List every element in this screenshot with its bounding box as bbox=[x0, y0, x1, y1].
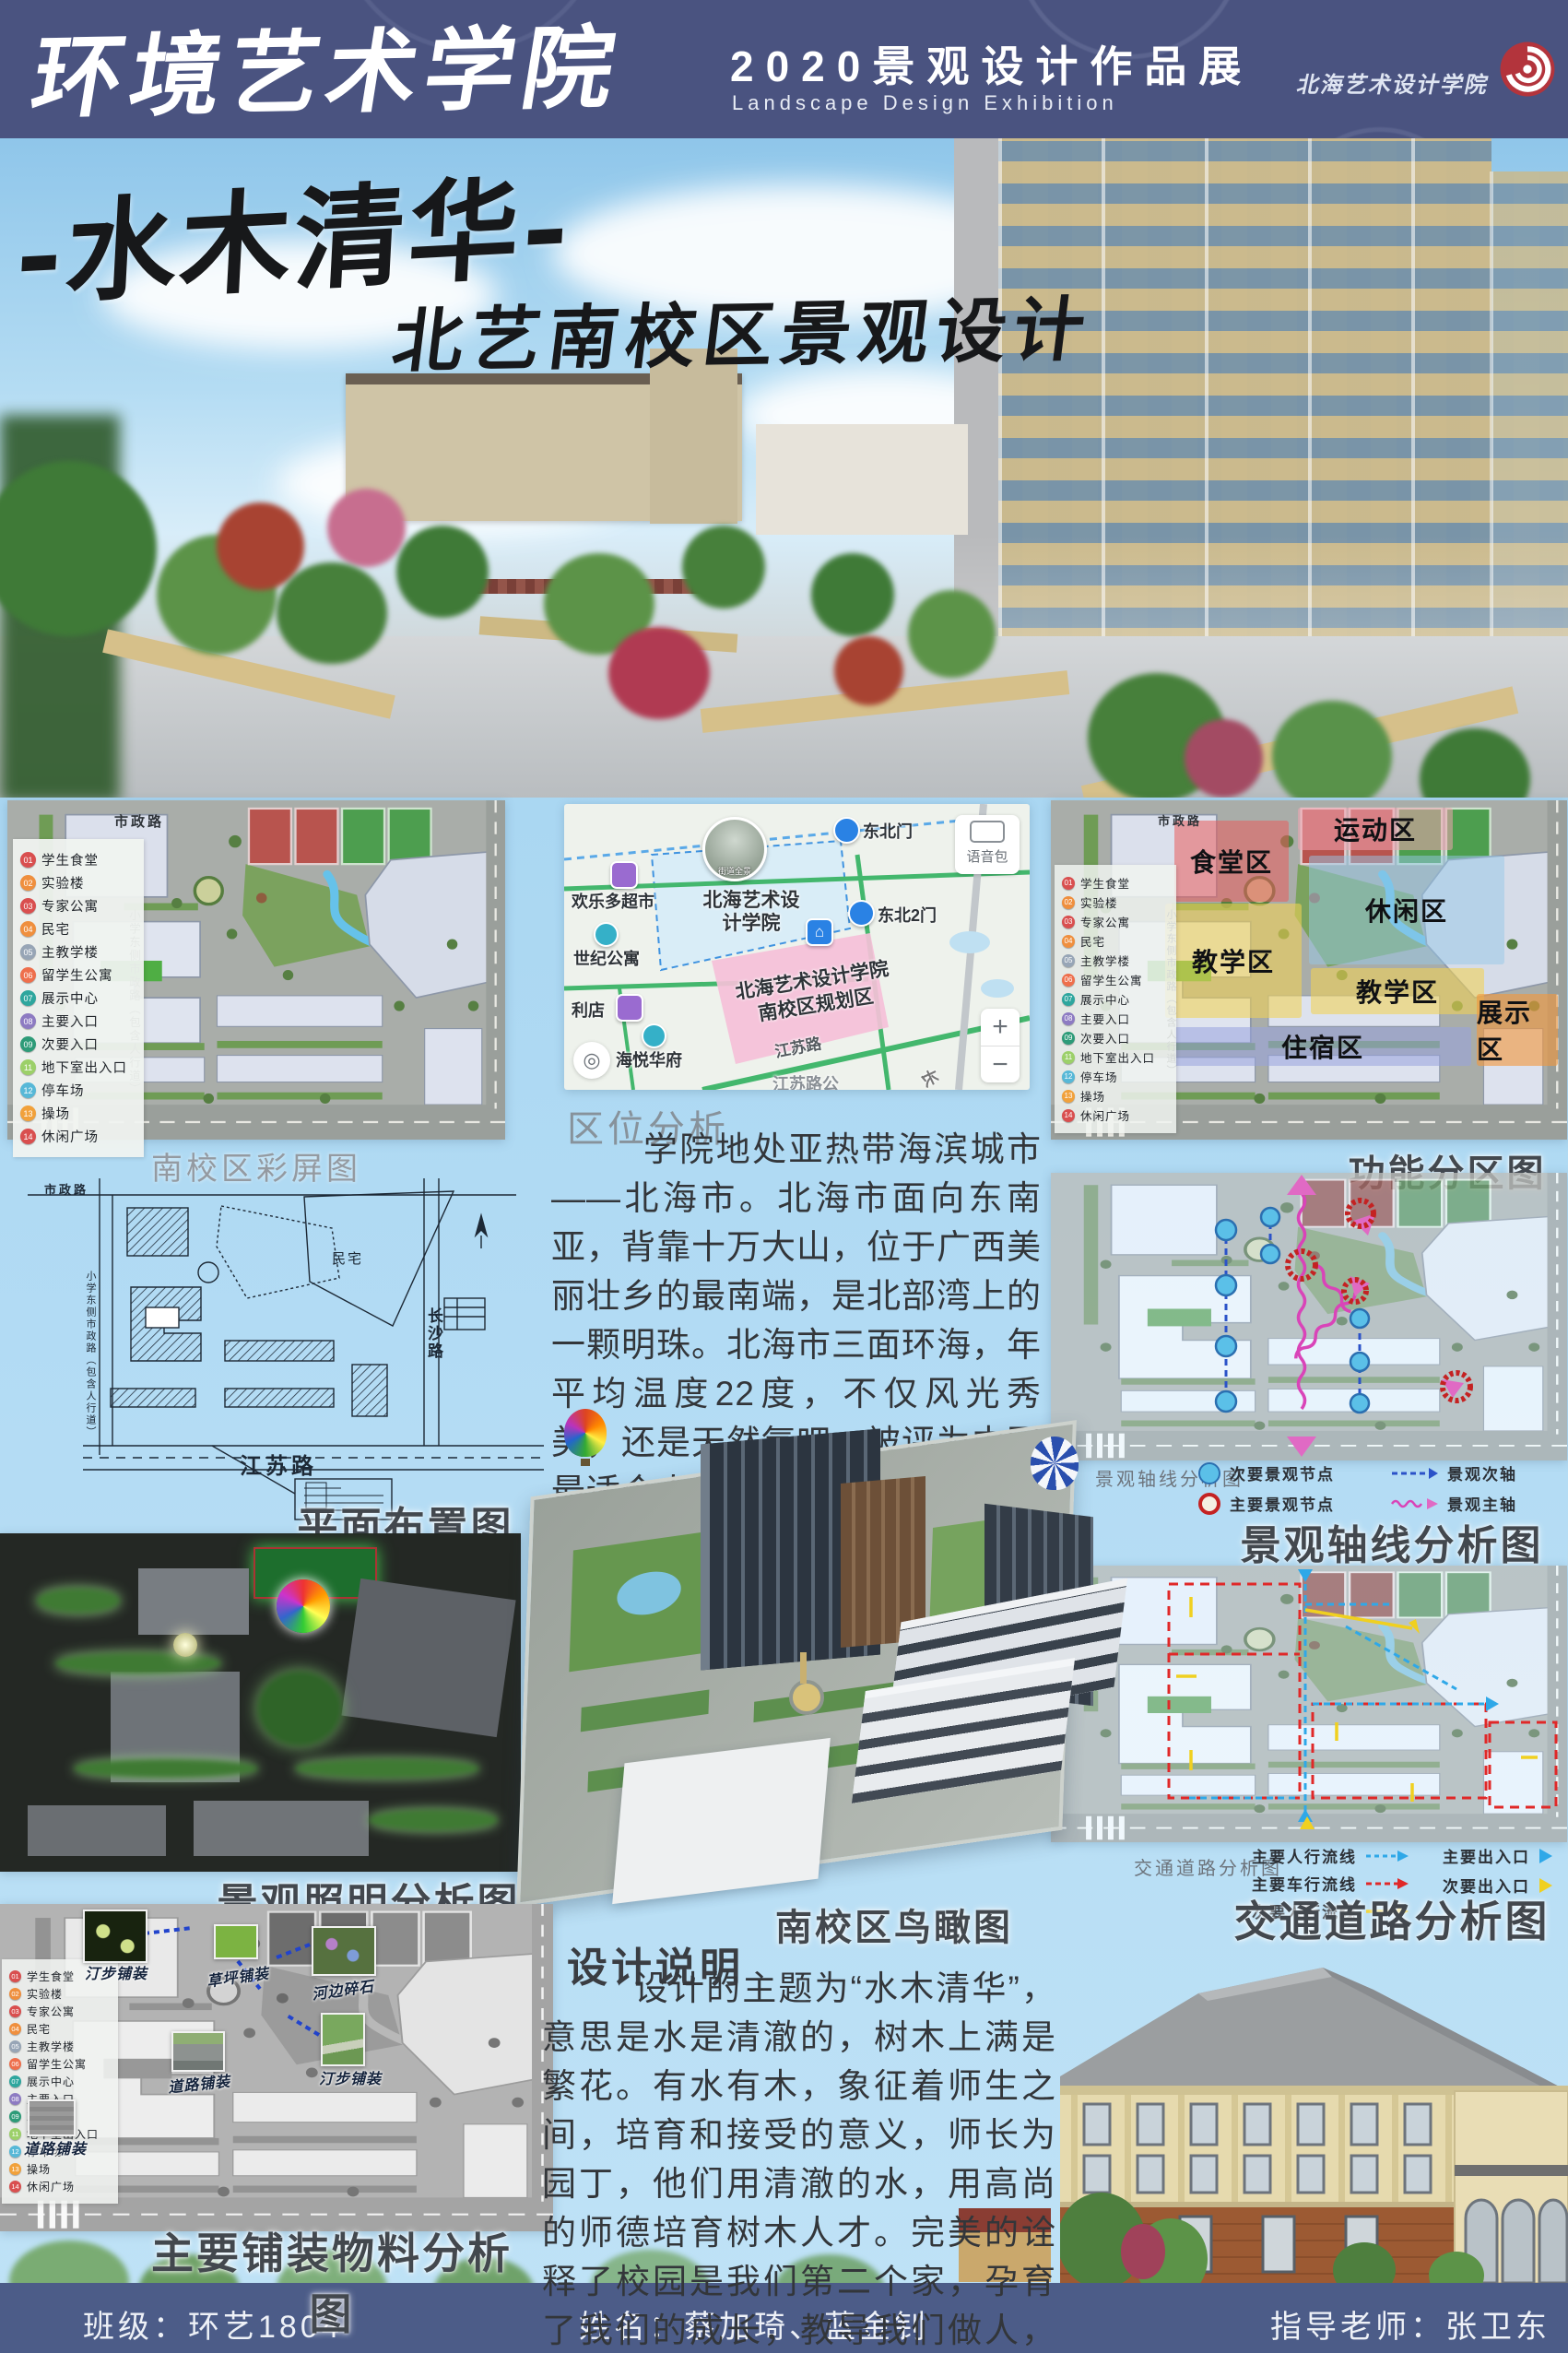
zoning-panel: 食堂区 运动区 休闲区 教学区 教学区 展示区 住宿区 市政路 小学东侧市政路（… bbox=[1051, 800, 1567, 1140]
elevation-drawing bbox=[1060, 1936, 1568, 2283]
hero-render: -水木清华- 北艺南校区景观设计 bbox=[0, 138, 1568, 798]
shop-marker-icon bbox=[616, 994, 643, 1022]
legend-item: 04 民宅 bbox=[1062, 932, 1171, 950]
legend-item: 02 实验楼 bbox=[1062, 893, 1171, 911]
gate-marker-icon bbox=[833, 817, 860, 844]
tree bbox=[396, 526, 489, 618]
legend-item: 14 休闲广场 bbox=[9, 2179, 112, 2194]
legend-item: 06 留学生公寓 bbox=[20, 965, 138, 985]
jiangsu-stop-label: 江苏路公 bbox=[772, 1071, 839, 1090]
map-pin-icon: 11 bbox=[9, 2128, 21, 2140]
green-strip bbox=[581, 1689, 710, 1732]
axis-legend-minor-node: 次要景观节点 bbox=[1198, 1461, 1335, 1484]
statue bbox=[800, 1652, 807, 1684]
legend-item: 07 展示中心 bbox=[20, 988, 138, 1008]
shop-marker-icon bbox=[610, 861, 638, 889]
aerial-view bbox=[516, 1355, 1097, 1909]
map-pin-icon: 07 bbox=[9, 2075, 21, 2087]
voice-icon bbox=[970, 821, 1005, 843]
traffic-overlay bbox=[1051, 1566, 1567, 1842]
building-marker-icon bbox=[642, 1023, 666, 1048]
residence-label: 海悦华府 bbox=[616, 1047, 682, 1071]
pink-tree bbox=[1185, 719, 1263, 798]
glowing-hedge bbox=[74, 1759, 258, 1778]
statue-plaza bbox=[789, 1680, 824, 1715]
balloon-basket bbox=[581, 1459, 590, 1466]
school-swirl-logo-icon bbox=[1499, 41, 1556, 98]
map-pin-icon: 11 bbox=[1062, 1051, 1075, 1064]
zoom-out-button[interactable]: − bbox=[981, 1046, 1020, 1083]
zone-teaching-2: 教学区 bbox=[1311, 968, 1484, 1014]
page-title: 环境艺术学院 bbox=[24, 0, 632, 136]
tree bbox=[682, 526, 765, 609]
map-pin-icon: 14 bbox=[20, 1129, 36, 1144]
map-pin-icon: 12 bbox=[9, 2146, 21, 2158]
gate-marker-icon bbox=[848, 900, 875, 927]
hot-air-balloon-right bbox=[1031, 1437, 1079, 1490]
street-view-label: 街道全景 bbox=[705, 865, 764, 877]
map-pin-icon: 06 bbox=[9, 2058, 21, 2070]
cad-plan-panel: 市政路 小学东侧市政路（包含人行道） 民宅 长沙路 江苏路 bbox=[28, 1169, 544, 1529]
map-pin-icon: 13 bbox=[20, 1106, 36, 1121]
map-zoom-control: + − bbox=[981, 1009, 1020, 1082]
legend-item: 02 实验楼 bbox=[20, 873, 138, 893]
aerial-caption: 南校区鸟瞰图 bbox=[710, 1898, 1079, 1951]
map-pin-icon: 02 bbox=[20, 875, 36, 891]
paving-panel: 市政路 01 学生食堂 02 实验楼 03 专家公寓 04 民宅 05 主教学楼… bbox=[0, 1904, 553, 2231]
map-pin-icon: 09 bbox=[20, 1036, 36, 1052]
legend-item: 14 休闲广场 bbox=[1062, 1106, 1171, 1124]
road-label-municipal: 市政路 bbox=[1158, 811, 1202, 829]
map-pin-icon: 02 bbox=[1062, 896, 1075, 909]
map-pin-icon: 12 bbox=[20, 1082, 36, 1098]
zone-leisure: 休闲区 bbox=[1309, 856, 1504, 964]
zone-canteen: 食堂区 bbox=[1174, 821, 1289, 902]
zone-dormitory: 住宿区 bbox=[1174, 1027, 1471, 1066]
map-pin-icon: 06 bbox=[1062, 974, 1075, 987]
color-plan-panel: 市政路 小学东侧市政路（包含人行道） 01 学生食堂 02 实验楼 03 专家公… bbox=[7, 800, 505, 1140]
legend-item: 12 停车场 bbox=[1062, 1068, 1171, 1085]
store-label: 利店 bbox=[572, 998, 605, 1022]
hero-subtitle: 北艺南校区景观设计 bbox=[387, 272, 1098, 385]
plan-legend: 01 学生食堂 02 实验楼 03 专家公寓 04 民宅 05 主教学楼 06 … bbox=[2, 1959, 118, 2204]
legend-item: 01 学生食堂 bbox=[20, 850, 138, 869]
red-tree bbox=[834, 636, 903, 705]
legend-item: 06 留学生公寓 bbox=[9, 2056, 112, 2072]
location-map: 街道全景 北海艺术设计学院 ⌂ 东北门 东北2门 欢乐多超市 世纪公寓 利店 海… bbox=[564, 804, 1030, 1090]
blue-dashed-arrow-icon bbox=[1366, 1850, 1409, 1862]
glowing-hedge bbox=[37, 1589, 120, 1613]
legend-item: 02 实验楼 bbox=[9, 1986, 112, 2002]
glowing-hedge bbox=[55, 1653, 221, 1673]
legend-item: 09 次要入口 bbox=[1062, 1029, 1171, 1046]
map-pin-icon: 05 bbox=[1062, 954, 1075, 967]
zoom-in-button[interactable]: + bbox=[981, 1009, 1020, 1046]
lit-building bbox=[28, 1805, 166, 1856]
map-pin-icon: 04 bbox=[9, 2023, 21, 2035]
header-bar: 环境艺术学院 2020景观设计作品展 Landscape Design Exhi… bbox=[0, 0, 1568, 138]
legend-item: 07 展示中心 bbox=[9, 2074, 112, 2089]
legend-item: 03 专家公寓 bbox=[1062, 913, 1171, 930]
traffic-legend-main-entry: 主要出入口 bbox=[1443, 1844, 1552, 1867]
exhibition-subtitle: Landscape Design Exhibition bbox=[732, 91, 1118, 115]
map-pin-icon: 14 bbox=[1062, 1109, 1075, 1122]
lighting-panel bbox=[0, 1533, 521, 1872]
red-tree bbox=[608, 627, 710, 719]
map-pin-icon: 08 bbox=[9, 2093, 21, 2105]
callout-stepping-2: 汀步铺装 bbox=[319, 2066, 382, 2088]
legend-item: 11 地下室出入口 bbox=[1062, 1048, 1171, 1066]
distant-building bbox=[756, 424, 968, 535]
map-pin-icon: 07 bbox=[1062, 993, 1075, 1006]
map-pin-icon: 03 bbox=[20, 898, 36, 914]
map-pin-icon: 11 bbox=[20, 1059, 36, 1075]
map-pin-icon: 09 bbox=[1062, 1032, 1075, 1045]
map-pin-icon: 02 bbox=[9, 1988, 21, 2000]
paving-photo-road bbox=[171, 2031, 225, 2072]
red-tree bbox=[217, 503, 304, 590]
tree bbox=[908, 590, 996, 678]
plan-legend: 01 学生食堂 02 实验楼 03 专家公寓 04 民宅 05 主教学楼 06 … bbox=[13, 839, 144, 1157]
low-white-building bbox=[612, 1738, 831, 1904]
legend-item: 05 主教学楼 bbox=[20, 942, 138, 962]
legend-item: 07 展示中心 bbox=[1062, 990, 1171, 1008]
locate-button[interactable]: ◎ bbox=[573, 1042, 610, 1079]
college-label: 北海艺术设计学院 bbox=[701, 889, 802, 935]
legend-item: 13 操场 bbox=[9, 2161, 112, 2177]
glowing-hedge bbox=[295, 1759, 479, 1778]
exhibition-poster: 环境艺术学院 2020景观设计作品展 Landscape Design Exhi… bbox=[0, 0, 1568, 2353]
lit-building bbox=[194, 1801, 369, 1856]
building-marker-icon bbox=[594, 922, 619, 947]
traffic-legend-ped: 主要人行流线 bbox=[1252, 1844, 1409, 1867]
axis-panel bbox=[1051, 1173, 1567, 1460]
home-marker-icon: ⌂ bbox=[806, 918, 833, 946]
voice-pack-label: 语音包 bbox=[955, 846, 1020, 866]
exhibition-title: 2020景观设计作品展 bbox=[730, 33, 1253, 94]
blue-dashed-axis-icon bbox=[1390, 1467, 1438, 1480]
legend-item: 13 操场 bbox=[20, 1104, 138, 1123]
callout-road-2: 道路铺装 bbox=[24, 2136, 87, 2158]
elevation-svg bbox=[1060, 1936, 1568, 2283]
lit-building bbox=[341, 1579, 515, 1737]
legend-item: 01 学生食堂 bbox=[1062, 874, 1171, 892]
legend-item: 06 留学生公寓 bbox=[1062, 971, 1171, 988]
tree bbox=[811, 553, 894, 636]
legend-item: 05 主教学楼 bbox=[1062, 952, 1171, 969]
legend-item: 08 主要入口 bbox=[20, 1011, 138, 1031]
road-label-school-side: 小学东侧市政路（包含人行道） bbox=[83, 1271, 98, 1455]
design-notes-body: 设计的主题为“水木清华”，意思是水是清澈的，树木上满是繁花。有水有木，象征着师生… bbox=[542, 1964, 1056, 2353]
advisor-label: 指导老师：张卫东 bbox=[1270, 2301, 1550, 2347]
glowing-hedge bbox=[369, 1810, 498, 1830]
minor-node-icon bbox=[1198, 1462, 1220, 1484]
gate-ne2-label: 东北2门 bbox=[878, 903, 937, 927]
tree bbox=[277, 562, 387, 664]
school-logo-text: 北海艺术设计学院 bbox=[1294, 66, 1492, 99]
street-view-photo[interactable]: 街道全景 bbox=[702, 817, 767, 881]
supermarket-label: 欢乐多超市 bbox=[572, 889, 654, 913]
axis-overlay bbox=[1051, 1173, 1567, 1460]
pink-wavy-axis-icon bbox=[1390, 1496, 1438, 1511]
paving-photo-stepping bbox=[83, 1910, 147, 1963]
paving-photo-gravel bbox=[312, 1926, 376, 1976]
plaza-light bbox=[173, 1633, 197, 1657]
map-pin-icon: 08 bbox=[1062, 1012, 1075, 1025]
traffic-panel bbox=[1051, 1566, 1567, 1842]
gate-ne-label: 东北门 bbox=[863, 819, 913, 843]
map-pin-icon: 03 bbox=[1062, 916, 1075, 928]
major-node-icon bbox=[1198, 1493, 1220, 1515]
paving-photo-road-2 bbox=[28, 2099, 76, 2136]
legend-item: 13 操场 bbox=[1062, 1087, 1171, 1105]
map-pin-icon: 05 bbox=[9, 2040, 21, 2052]
road-label-changsha: 长沙路 bbox=[422, 1307, 445, 1409]
tree bbox=[0, 461, 157, 636]
legend-item: 12 停车场 bbox=[20, 1081, 138, 1100]
glowing-garden bbox=[258, 1672, 341, 1745]
residence-area-label: 民宅 bbox=[332, 1248, 363, 1268]
zone-teaching-1: 教学区 bbox=[1165, 904, 1302, 1018]
hot-air-balloon-left bbox=[564, 1409, 607, 1457]
map-pin-icon: 09 bbox=[9, 2111, 21, 2122]
paving-photo-lawn bbox=[214, 1924, 258, 1959]
map-pin-icon: 01 bbox=[20, 852, 36, 868]
axis-legend-minor-axis: 景观次轴 bbox=[1390, 1461, 1517, 1484]
legend-item: 09 次要入口 bbox=[20, 1035, 138, 1054]
legend-item: 03 专家公寓 bbox=[20, 896, 138, 916]
map-pin-icon: 06 bbox=[20, 967, 36, 983]
paving-photo-stepping-2 bbox=[321, 2013, 365, 2066]
hot-air-balloon bbox=[277, 1579, 330, 1633]
map-pin-icon: 01 bbox=[1062, 877, 1075, 890]
legend-item: 05 主教学楼 bbox=[9, 2039, 112, 2054]
pink-tree bbox=[327, 489, 406, 567]
map-pin-icon: 07 bbox=[20, 990, 36, 1006]
apartment-label: 世纪公寓 bbox=[573, 946, 640, 970]
map-pin-icon: 04 bbox=[1062, 935, 1075, 948]
voice-pack-button[interactable]: 语音包 bbox=[955, 815, 1020, 874]
map-pin-icon: 14 bbox=[9, 2181, 21, 2193]
plan-legend: 01 学生食堂 02 实验楼 03 专家公寓 04 民宅 05 主教学楼 06 … bbox=[1055, 865, 1176, 1133]
callout-stepping-1: 汀步铺装 bbox=[85, 1961, 147, 1983]
map-pin-icon: 12 bbox=[1062, 1070, 1075, 1083]
paving-caption: 主要铺装物料分析图 bbox=[129, 2220, 535, 2342]
road-label-jiangsu: 江苏路 bbox=[240, 1448, 317, 1480]
map-pin-icon: 04 bbox=[20, 921, 36, 937]
legend-item: 11 地下室出入口 bbox=[20, 1058, 138, 1077]
map-pin-icon: 01 bbox=[9, 1970, 21, 1982]
zone-sports: 运动区 bbox=[1298, 808, 1453, 850]
map-pin-icon: 13 bbox=[9, 2163, 21, 2175]
road-label-municipal: 市政路 bbox=[114, 811, 164, 831]
legend-item: 03 专家公寓 bbox=[9, 2004, 112, 2019]
legend-item: 04 民宅 bbox=[20, 919, 138, 939]
axis-caption: 景观轴线分析图 bbox=[1208, 1512, 1568, 1571]
map-pin-icon: 13 bbox=[1062, 1090, 1075, 1103]
map-pin-icon: 03 bbox=[9, 2005, 21, 2017]
map-pin-icon: 08 bbox=[20, 1013, 36, 1029]
legend-item: 08 主要入口 bbox=[1062, 1010, 1171, 1027]
blue-wedge-icon bbox=[1539, 1849, 1552, 1863]
legend-item: 04 民宅 bbox=[9, 2021, 112, 2037]
map-pin-icon: 05 bbox=[20, 944, 36, 960]
lit-building bbox=[138, 1568, 249, 1635]
road-label-municipal: 市政路 bbox=[44, 1180, 88, 1198]
zone-exhibition: 展示区 bbox=[1477, 994, 1558, 1066]
